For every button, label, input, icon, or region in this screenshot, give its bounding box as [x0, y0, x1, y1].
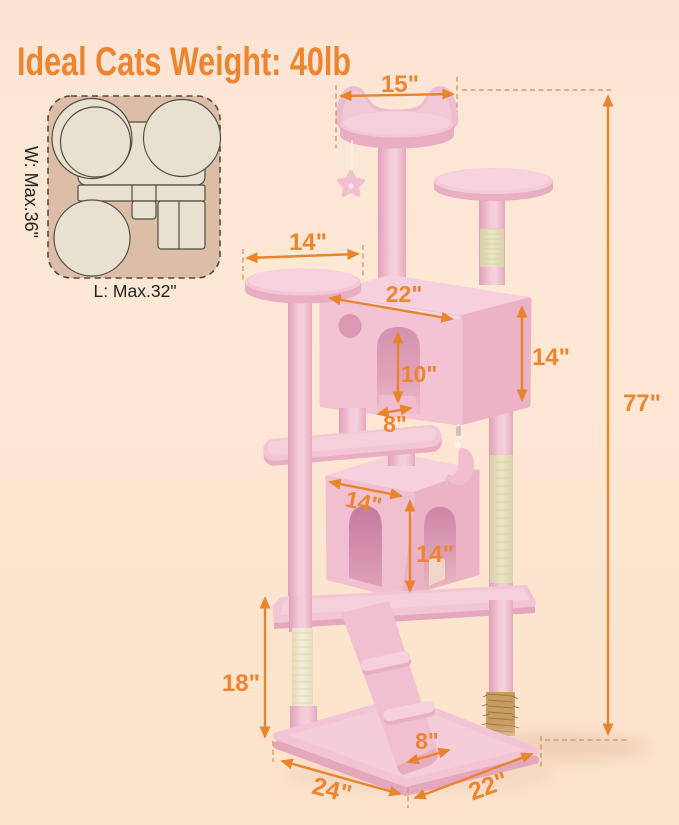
svg-text:14": 14": [532, 344, 570, 371]
svg-text:77": 77": [623, 390, 661, 417]
svg-text:8": 8": [383, 411, 407, 437]
svg-text:18": 18": [222, 670, 260, 697]
svg-text:Ideal Cats Weight: 40lb: Ideal Cats Weight: 40lb: [17, 40, 351, 84]
svg-text:15": 15": [381, 71, 419, 98]
svg-text:14": 14": [289, 229, 327, 256]
svg-text:10": 10": [401, 361, 438, 387]
svg-text:14": 14": [416, 541, 454, 568]
svg-text:22": 22": [386, 281, 423, 307]
svg-text:L: Max.32": L: Max.32": [93, 281, 176, 301]
svg-text:W: Max.36": W: Max.36": [21, 146, 41, 238]
svg-text:8": 8": [415, 728, 439, 754]
